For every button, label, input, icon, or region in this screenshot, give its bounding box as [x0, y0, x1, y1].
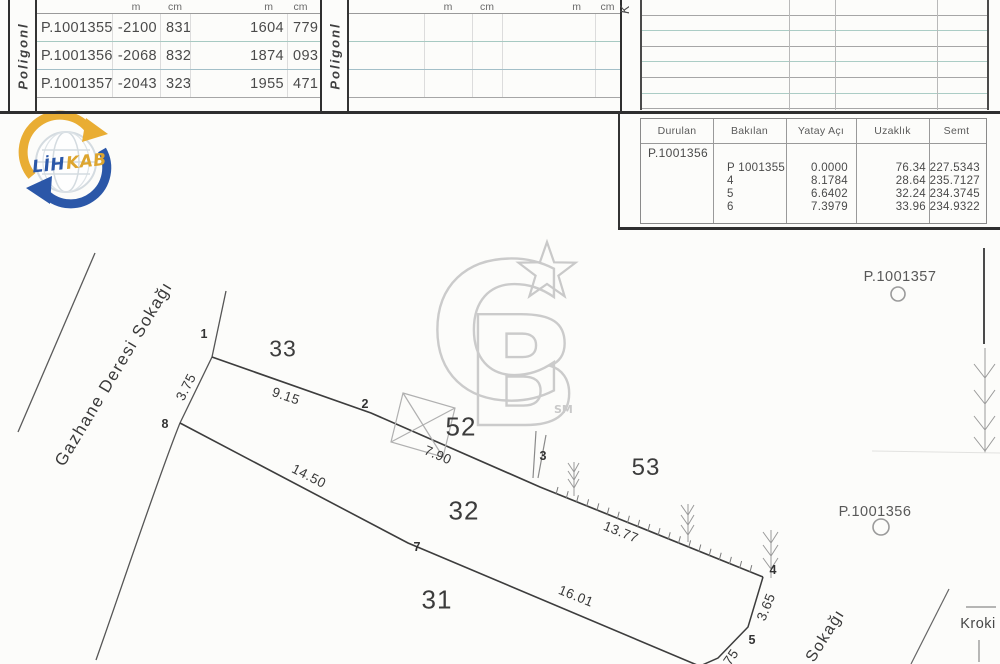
- poligon-section-label: Poligonl: [322, 0, 349, 112]
- observation-table: Durulan Bakılan Yatay Açı Uzaklık Semt P…: [640, 118, 987, 224]
- faint-scan-line: [872, 451, 1000, 453]
- poligon-table-left: Poligonl m cm m cm P.1001355-21008311604…: [8, 0, 322, 112]
- observation-cell: 6.6402: [786, 188, 856, 200]
- poligon-cell: [502, 14, 595, 41]
- observation-cell: 235.7127: [929, 175, 984, 187]
- observation-row: 67.397933.96234.9322: [641, 200, 986, 213]
- poligon-cell: [502, 70, 595, 97]
- poligon-row: [349, 42, 620, 70]
- observation-cell: 76.34: [856, 162, 929, 174]
- scanned-survey-sketch-document: C B SM: [0, 0, 1000, 664]
- poligon-cell: [349, 42, 424, 69]
- observation-cell: P 1001355: [713, 162, 786, 174]
- poligon-cell: [472, 42, 502, 69]
- street-edge-bottom-right: [911, 589, 949, 664]
- poligon-row: P.1001355-21008311604779: [37, 14, 320, 42]
- observation-cell: 8.1784: [786, 175, 856, 187]
- poligon-cell: [472, 14, 502, 41]
- poligon-row: [349, 14, 620, 42]
- poligon-table-middle: Poligonl m cm m cm: [320, 0, 622, 112]
- poligon-cell: P.1001357: [37, 70, 112, 97]
- poligon-section-label: Poligonl: [10, 0, 37, 112]
- poligon-cell: [349, 14, 424, 41]
- observation-rows: P 10013550.000076.34227.534348.178428.64…: [641, 161, 986, 213]
- poligon-cell: 1874: [190, 42, 287, 69]
- poligon-cell: [595, 42, 620, 69]
- street-edge-frontage: [96, 291, 226, 660]
- observation-cell: 234.3745: [929, 188, 984, 200]
- unit-header-row: m cm m cm: [37, 0, 320, 14]
- poligon-cell: [424, 42, 472, 69]
- observation-cell: 32.24: [856, 188, 929, 200]
- observation-cell: 33.96: [856, 201, 929, 213]
- poligon-cell: [595, 70, 620, 97]
- observation-cell: 7.3979: [786, 201, 856, 213]
- poligon-table-rows: P.1001355-21008311604779P.1001356-206883…: [37, 14, 320, 98]
- poligon-row: P.1001356-20688321874093: [37, 42, 320, 70]
- observation-station-row: P.1001356: [641, 144, 986, 161]
- poligon-cell: 1955: [190, 70, 287, 97]
- observation-table-bottom-border: [618, 227, 1000, 230]
- observation-table-left-border: [618, 112, 620, 229]
- tree-symbols-icon: [568, 348, 995, 578]
- poligon-row: [349, 70, 620, 98]
- poligon-cell: 1604: [190, 14, 287, 41]
- observation-cell: 5: [713, 188, 786, 200]
- poligon-cell: 832: [160, 42, 190, 69]
- poligon-table-empty-rows: [349, 14, 620, 98]
- observation-cell: 0.0000: [786, 162, 856, 174]
- observation-cell: 4: [713, 175, 786, 187]
- poligon-cell: 779: [287, 14, 314, 41]
- parcel-boundary-bottom: [180, 423, 697, 664]
- observation-cell: 234.9322: [929, 201, 984, 213]
- poligon-cell: P.1001355: [37, 14, 112, 41]
- empty-grid-table: [640, 0, 989, 110]
- observation-cell: 28.64: [856, 175, 929, 187]
- lihkab-logo: LİHKAB: [23, 115, 108, 204]
- poligon-cell: [595, 14, 620, 41]
- poligon-cell: 093: [287, 42, 314, 69]
- poligon-cell: [424, 70, 472, 97]
- poligon-cell: [424, 14, 472, 41]
- benchmark-circle-1001357: [891, 287, 905, 301]
- table-divider-line: [0, 111, 1000, 114]
- poligon-cell: [502, 42, 595, 69]
- station-id: P.1001356: [641, 146, 708, 160]
- observation-row: P 10013550.000076.34227.5343: [641, 161, 986, 174]
- benchmark-circle-1001356: [873, 519, 889, 535]
- poligon-cell: 831: [160, 14, 190, 41]
- observation-cell: 227.5343: [929, 162, 984, 174]
- poligon-cell: 471: [287, 70, 314, 97]
- poligon-cell: [349, 70, 424, 97]
- svg-text:B: B: [464, 284, 580, 461]
- observation-header-row: Durulan Bakılan Yatay Açı Uzaklık Semt: [641, 119, 986, 144]
- kroki-border-marks: [966, 607, 996, 662]
- observation-row: 56.640232.24234.3745: [641, 187, 986, 200]
- observation-row: 48.178428.64235.7127: [641, 174, 986, 187]
- poligon-cell: -2043: [112, 70, 160, 97]
- poligon-cell: -2068: [112, 42, 160, 69]
- parcel-boundary-right: [700, 577, 763, 664]
- svg-text:SM: SM: [554, 403, 573, 416]
- poligon-cell: 323: [160, 70, 190, 97]
- kroki-column-label: K: [617, 5, 632, 14]
- poligon-cell: P.1001356: [37, 42, 112, 69]
- poligon-row: P.1001357-20433231955471: [37, 70, 320, 98]
- observation-cell: 6: [713, 201, 786, 213]
- unit-header-row: m cm m cm: [349, 0, 620, 14]
- poligon-cell: [472, 70, 502, 97]
- street-edge-left: [18, 253, 95, 432]
- poligon-cell: -2100: [112, 14, 160, 41]
